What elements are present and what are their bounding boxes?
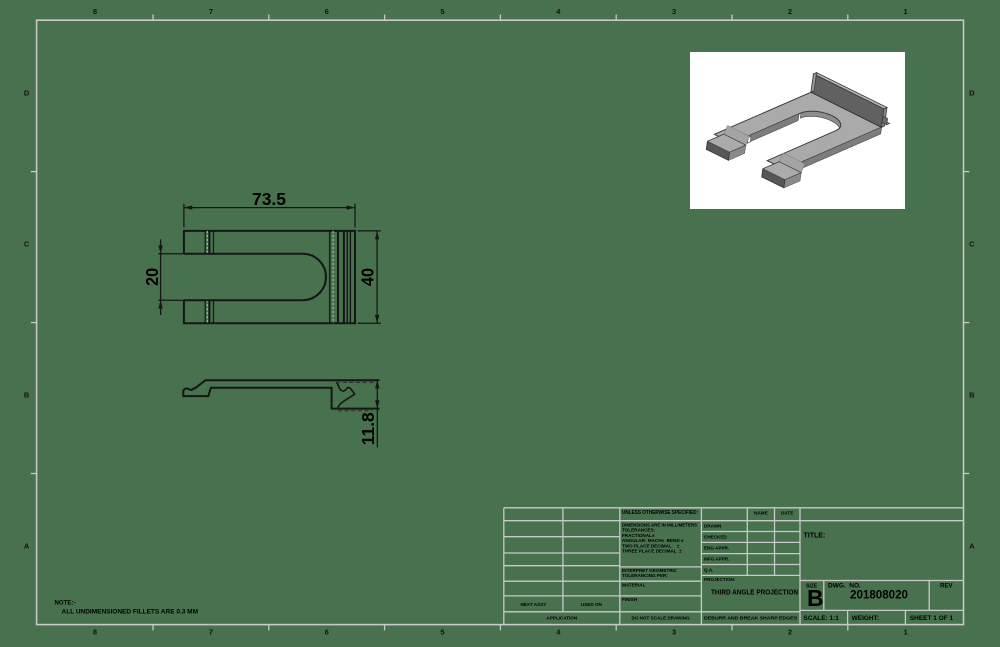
svg-text:7: 7 bbox=[209, 628, 213, 637]
svg-text:3: 3 bbox=[672, 628, 676, 637]
svg-text:8: 8 bbox=[93, 628, 97, 637]
svg-text:1: 1 bbox=[904, 628, 908, 637]
svg-text:B: B bbox=[969, 391, 975, 400]
svg-text:TOLERANCING PER:: TOLERANCING PER: bbox=[622, 573, 668, 578]
svg-text:C: C bbox=[969, 240, 975, 249]
svg-text:NOTE:-: NOTE:- bbox=[55, 600, 76, 607]
svg-text:Q.A.: Q.A. bbox=[704, 567, 713, 572]
svg-text:FINISH: FINISH bbox=[622, 597, 638, 602]
svg-text:A: A bbox=[969, 542, 975, 551]
svg-text:NAME: NAME bbox=[754, 511, 768, 516]
svg-text:TITLE:: TITLE: bbox=[804, 533, 826, 540]
svg-text:ENG APPR.: ENG APPR. bbox=[704, 546, 729, 551]
svg-text:DATE: DATE bbox=[781, 511, 793, 516]
svg-text:3: 3 bbox=[672, 7, 676, 16]
svg-text:5: 5 bbox=[440, 7, 444, 16]
svg-text:THREE PLACE DECIMAL ±: THREE PLACE DECIMAL ± bbox=[622, 549, 682, 554]
svg-text:MATERIAL: MATERIAL bbox=[622, 583, 646, 588]
svg-text:C: C bbox=[24, 240, 30, 249]
svg-text:MFG APPR.: MFG APPR. bbox=[704, 556, 729, 561]
svg-text:UNLESS OTHERWISE SPECIFIED:: UNLESS OTHERWISE SPECIFIED: bbox=[622, 510, 698, 516]
svg-text:D: D bbox=[969, 89, 975, 98]
svg-text:NEXT ASSY: NEXT ASSY bbox=[520, 602, 546, 607]
svg-text:DRAWN: DRAWN bbox=[704, 524, 722, 529]
svg-text:2: 2 bbox=[788, 628, 792, 637]
svg-text:SHEET 1 OF 1: SHEET 1 OF 1 bbox=[910, 615, 954, 622]
svg-text:DO NOT SCALE DRAWING: DO NOT SCALE DRAWING bbox=[632, 616, 691, 621]
svg-text:USED ON: USED ON bbox=[581, 602, 603, 607]
svg-text:WEIGHT:: WEIGHT: bbox=[852, 615, 879, 622]
svg-text:8: 8 bbox=[93, 7, 97, 16]
svg-text:DEBURR AND BREAK SHARP EDGES: DEBURR AND BREAK SHARP EDGES bbox=[704, 616, 797, 621]
svg-text:201808020: 201808020 bbox=[850, 588, 908, 602]
svg-text:2: 2 bbox=[788, 7, 792, 16]
svg-text:40: 40 bbox=[358, 268, 378, 286]
svg-text:B: B bbox=[807, 585, 824, 611]
svg-text:REV: REV bbox=[940, 584, 952, 590]
svg-text:11.8: 11.8 bbox=[358, 412, 378, 445]
svg-text:B: B bbox=[24, 391, 30, 400]
svg-text:CHECKED: CHECKED bbox=[704, 534, 727, 539]
svg-text:ALL UNDIMENSIONED FILLETS ARE: ALL UNDIMENSIONED FILLETS ARE 0.3 MM bbox=[62, 609, 199, 616]
svg-text:5: 5 bbox=[440, 628, 444, 637]
svg-text:THIRD ANGLE PROJECTION: THIRD ANGLE PROJECTION bbox=[711, 590, 798, 597]
svg-text:6: 6 bbox=[325, 7, 329, 16]
svg-text:6: 6 bbox=[325, 628, 329, 637]
svg-text:APPLICATION: APPLICATION bbox=[546, 616, 577, 621]
svg-text:1: 1 bbox=[904, 7, 908, 16]
svg-text:7: 7 bbox=[209, 7, 213, 16]
svg-text:SCALE: 1:1: SCALE: 1:1 bbox=[804, 615, 840, 622]
svg-text:A: A bbox=[24, 542, 30, 551]
svg-text:PROJECTION:: PROJECTION: bbox=[704, 577, 736, 582]
svg-text:73.5: 73.5 bbox=[252, 189, 286, 209]
svg-text:D: D bbox=[24, 89, 30, 98]
svg-text:20: 20 bbox=[142, 268, 162, 286]
